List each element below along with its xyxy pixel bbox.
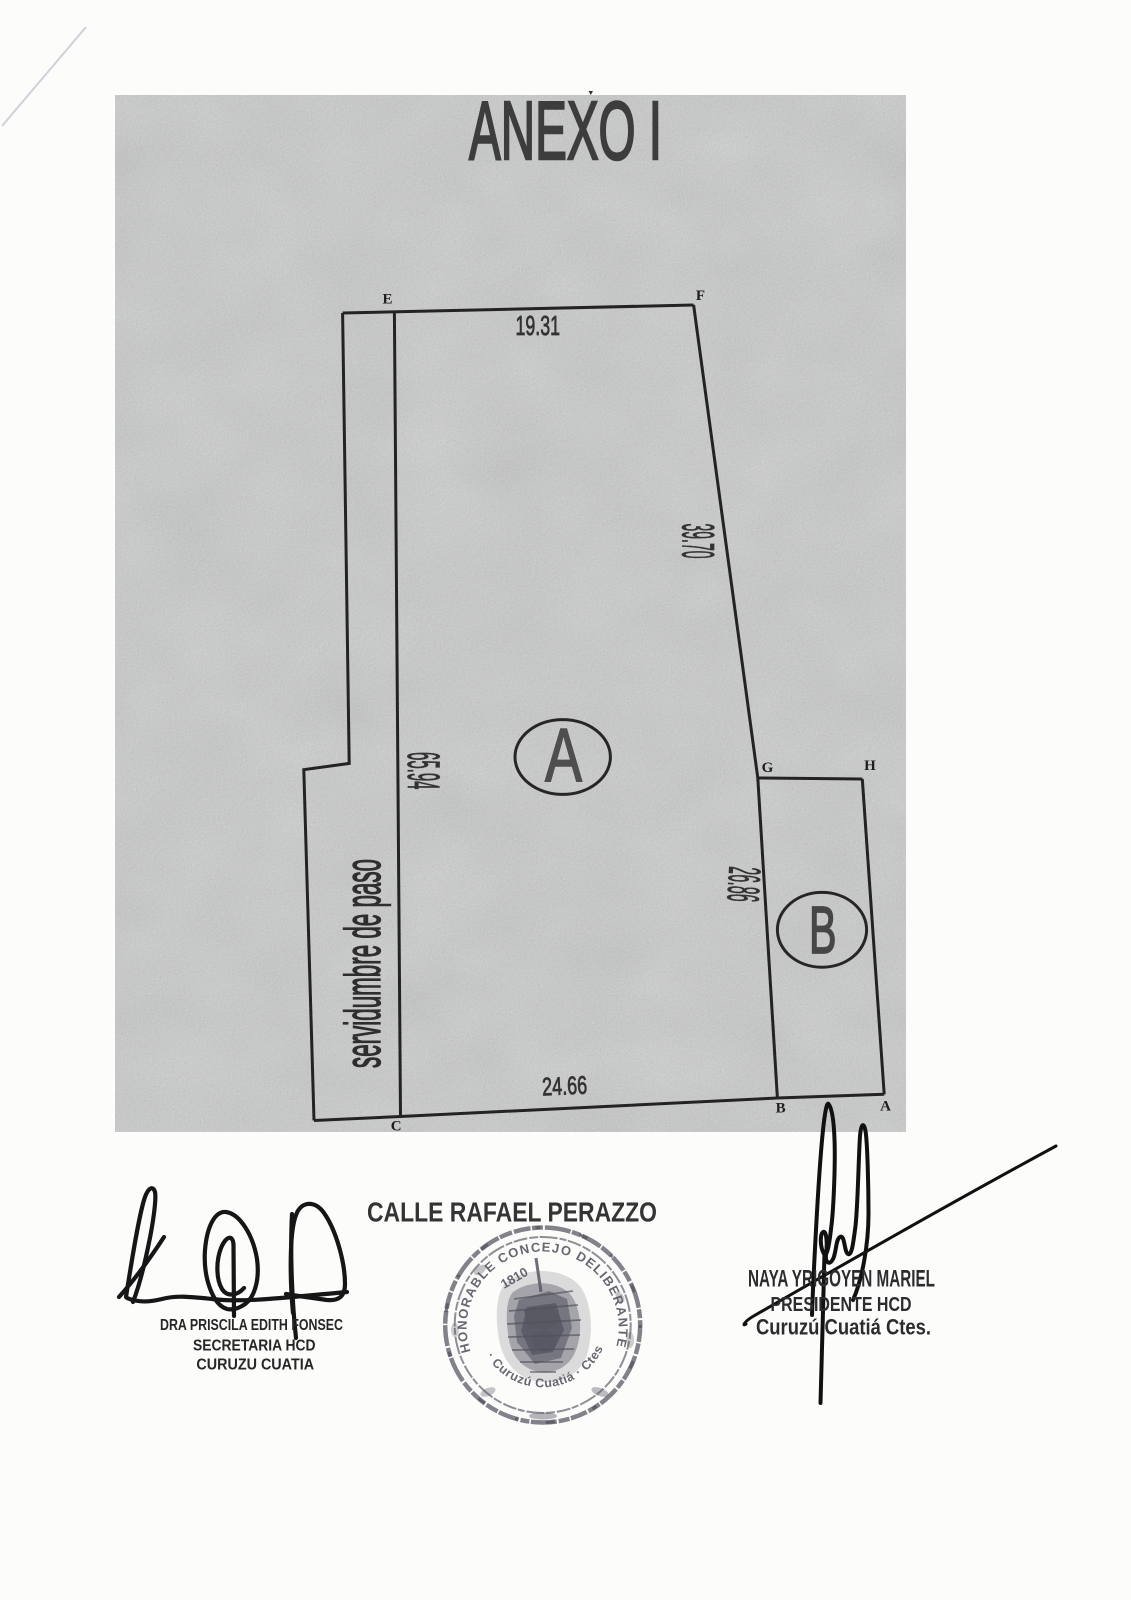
svg-text:F: F bbox=[696, 288, 705, 304]
svg-text:19.31: 19.31 bbox=[516, 310, 561, 341]
svg-text:B: B bbox=[776, 1101, 786, 1117]
svg-text:G: G bbox=[762, 760, 774, 776]
svg-text:H: H bbox=[864, 758, 876, 774]
svg-text:ANEXO I: ANEXO I bbox=[469, 84, 662, 177]
svg-text:65.94: 65.94 bbox=[398, 752, 449, 790]
svg-text:E: E bbox=[382, 292, 392, 308]
svg-text:PRESIDENTE HCD: PRESIDENTE HCD bbox=[771, 1294, 912, 1316]
svg-text:26.86: 26.86 bbox=[717, 865, 770, 903]
svg-text:A: A bbox=[545, 714, 582, 799]
svg-text:24.66: 24.66 bbox=[542, 1072, 588, 1102]
svg-text:C: C bbox=[391, 1118, 402, 1134]
svg-text:A: A bbox=[880, 1098, 891, 1114]
svg-text:NAYA YRIGOYEN MARIEL: NAYA YRIGOYEN MARIEL bbox=[748, 1266, 935, 1293]
svg-text:39.70: 39.70 bbox=[673, 524, 724, 559]
svg-text:Curuzú Cuatiá Ctes.: Curuzú Cuatiá Ctes. bbox=[756, 1315, 931, 1340]
svg-text:servidumbre de paso: servidumbre de paso bbox=[335, 859, 391, 1068]
svg-text:B: B bbox=[809, 893, 837, 968]
svg-text:CALLE RAFAEL PERAZZO: CALLE RAFAEL PERAZZO bbox=[367, 1197, 657, 1228]
svg-text:CURUZU CUATIA: CURUZU CUATIA bbox=[196, 1357, 314, 1374]
svg-text:DRA PRISCILA EDITH FONSEC: DRA PRISCILA EDITH FONSEC bbox=[160, 1317, 343, 1334]
svg-text:SECRETARIA HCD: SECRETARIA HCD bbox=[193, 1338, 316, 1355]
